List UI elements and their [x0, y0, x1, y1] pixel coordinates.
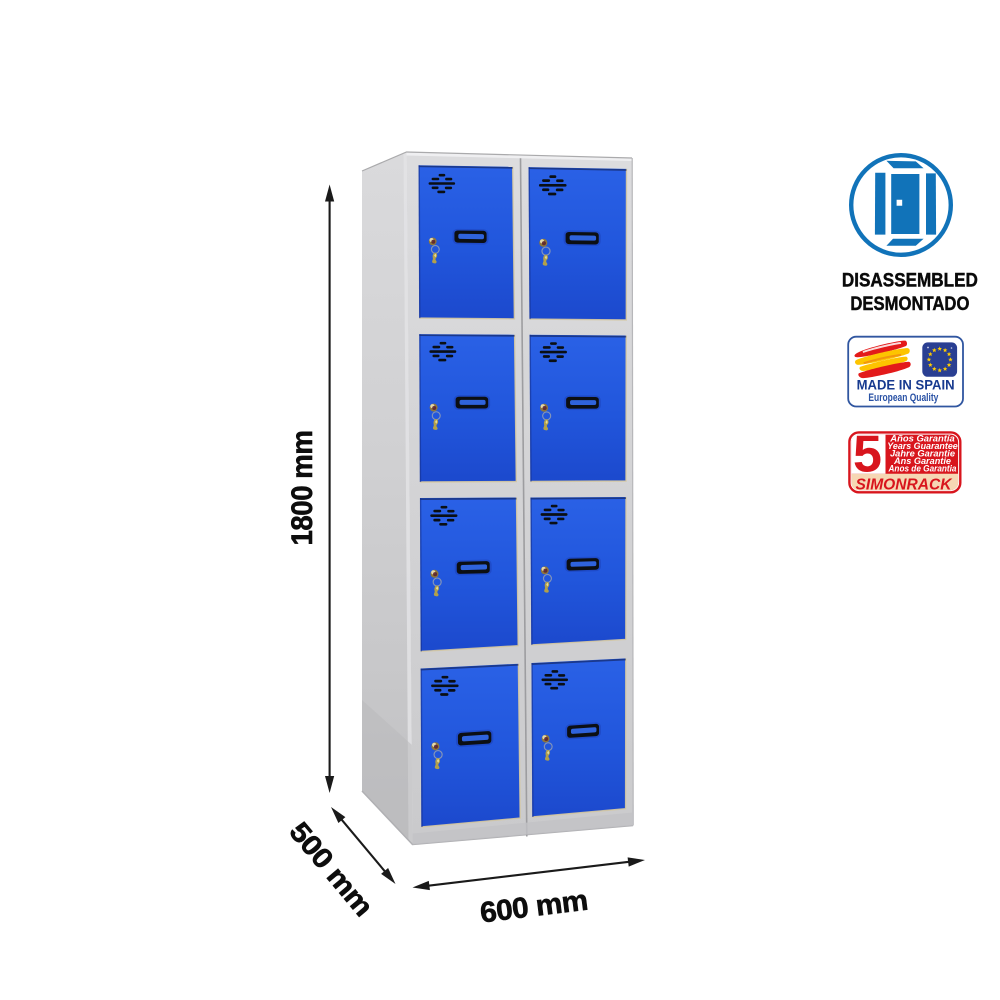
svg-text:European Quality: European Quality — [868, 392, 939, 404]
svg-text:Anos de Garantia: Anos de Garantia — [888, 464, 957, 474]
svg-text:600 mm: 600 mm — [478, 885, 589, 930]
svg-text:1800 mm: 1800 mm — [286, 431, 319, 546]
svg-text:5: 5 — [853, 426, 882, 484]
svg-text:500 mm: 500 mm — [283, 816, 379, 922]
svg-text:DISASSEMBLED: DISASSEMBLED — [842, 271, 978, 292]
svg-text:DESMONTADO: DESMONTADO — [850, 294, 969, 315]
svg-text:MADE IN SPAIN: MADE IN SPAIN — [857, 377, 955, 393]
svg-text:SIMONRACK: SIMONRACK — [856, 476, 954, 493]
